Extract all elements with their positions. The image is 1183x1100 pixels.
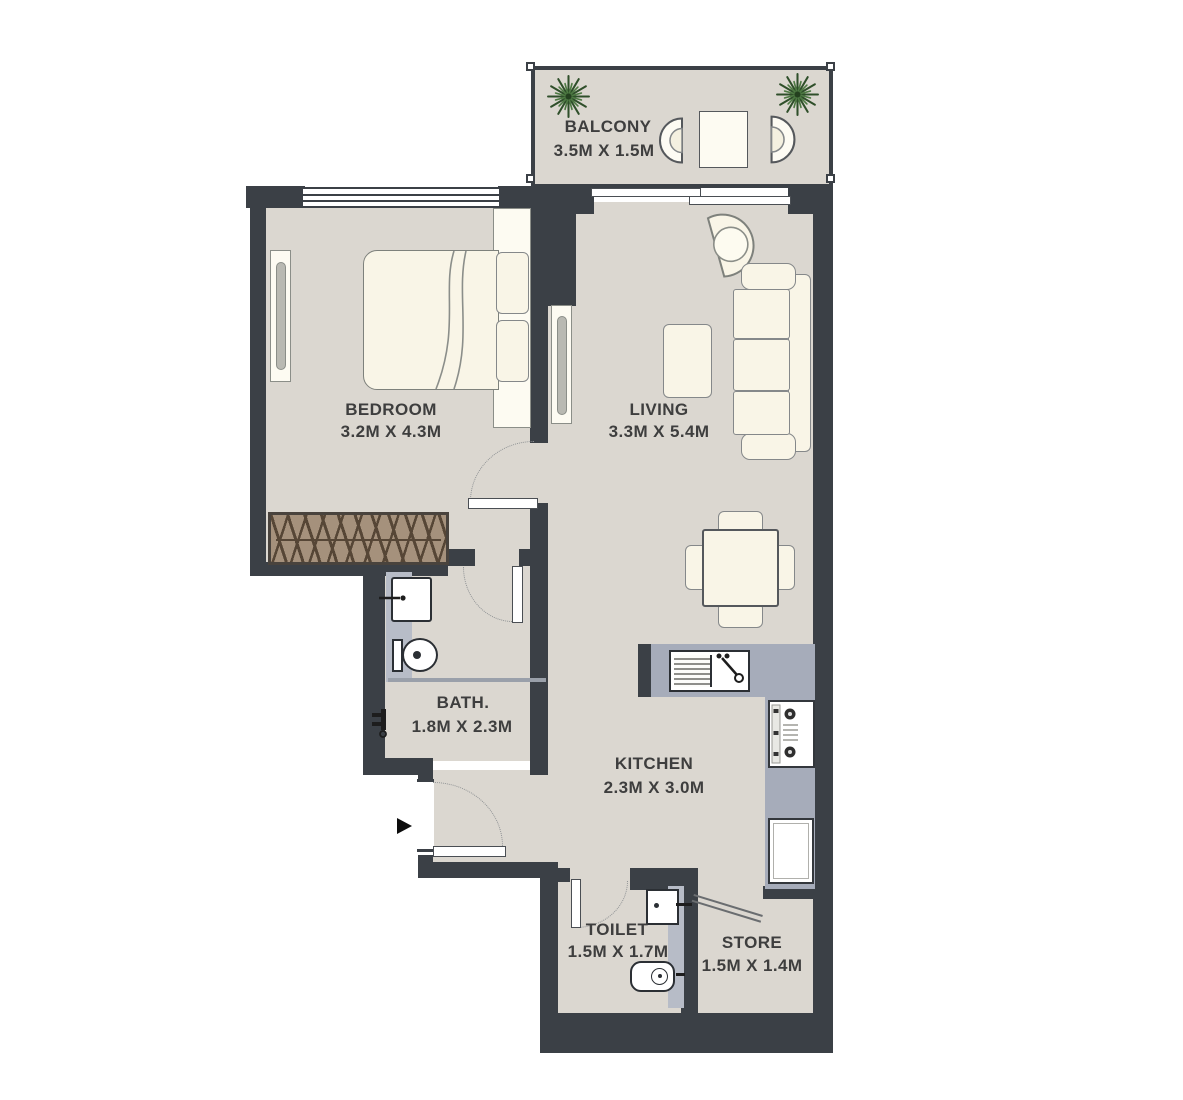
balcony-post	[826, 174, 835, 183]
wall	[558, 868, 570, 882]
sofa-back	[788, 274, 811, 452]
toilet-flush	[676, 973, 685, 976]
wall-bottom	[540, 1013, 833, 1053]
wall	[418, 862, 558, 878]
plant-icon	[546, 74, 591, 119]
bedroom-label: BEDROOM	[345, 400, 437, 420]
wall-divider	[530, 186, 576, 306]
entry-arrow-icon	[397, 818, 412, 834]
door-gap-floor	[698, 886, 763, 899]
entry-door	[433, 846, 506, 857]
balcony-sliding-door	[689, 196, 791, 205]
balcony-post	[526, 62, 535, 71]
stove	[768, 700, 815, 768]
wall	[498, 186, 534, 208]
sink-drain	[654, 903, 659, 908]
toilet-bowl	[630, 961, 675, 992]
sofa-armrest	[741, 433, 796, 460]
kitchen-sink	[669, 650, 750, 692]
toilet-drain	[413, 651, 421, 659]
balcony-table	[699, 111, 748, 168]
balcony-chair	[757, 112, 809, 167]
plant-icon	[775, 72, 820, 117]
sofa-cushion	[733, 339, 790, 391]
bedroom-dims: 3.2M X 4.3M	[341, 422, 442, 442]
toilet-sink-faucet	[676, 903, 692, 906]
bath-label: BATH.	[437, 693, 490, 713]
wall-left-bedroom	[250, 186, 266, 576]
counter-endcap	[638, 644, 651, 697]
refrigerator-inner	[773, 823, 809, 879]
wardrobe	[268, 512, 449, 565]
balcony-label: BALCONY	[565, 117, 652, 137]
coffee-table	[663, 324, 712, 398]
dresser-handle	[276, 262, 286, 370]
dining-table	[702, 529, 779, 607]
wall	[445, 549, 475, 566]
refrigerator	[768, 818, 814, 884]
entry-opening	[417, 779, 434, 855]
bath-dims: 1.8M X 2.3M	[412, 717, 513, 737]
wall-right	[813, 186, 833, 1052]
door-gap-floor	[474, 549, 520, 567]
floor-plan: BALCONY 3.5M X 1.5M BEDROOM 3.2M X 4.3M …	[0, 0, 1183, 1100]
balcony-post	[526, 174, 535, 183]
hall-console	[551, 305, 572, 424]
toilet-bowl-dot	[658, 974, 662, 978]
shower-mixer-icon	[370, 708, 396, 738]
toilet-dims: 1.5M X 1.7M	[568, 942, 669, 962]
sink-basin	[714, 652, 748, 690]
living-dims: 3.3M X 5.4M	[609, 422, 710, 442]
toilet-sink	[646, 889, 679, 925]
sofa-cushion	[733, 289, 790, 339]
console-shelf	[557, 316, 567, 415]
bath-sink-faucet	[378, 593, 408, 603]
toilet-door	[571, 879, 581, 928]
sink-drainboard	[674, 655, 712, 687]
sofa-cushion	[733, 391, 790, 435]
bath-door	[512, 566, 523, 623]
balcony-sliding-door	[591, 188, 701, 197]
toilet-label: TOILET	[586, 920, 649, 940]
kitchen-label: KITCHEN	[615, 754, 693, 774]
balcony-dims: 3.5M X 1.5M	[554, 141, 655, 161]
sofa-armrest	[741, 263, 796, 290]
entry-frame	[417, 849, 434, 852]
pillow	[496, 320, 529, 382]
store-dims: 1.5M X 1.4M	[702, 956, 803, 976]
wall-divider	[530, 503, 548, 775]
bath-partition-line	[388, 678, 546, 682]
window-mullion	[303, 200, 499, 202]
wall-toilet-left	[540, 868, 558, 1015]
balcony-post	[826, 62, 835, 71]
wall-divider	[530, 306, 548, 443]
entry-frame	[417, 779, 434, 782]
bed-blanket-fold	[420, 250, 482, 390]
bath-toilet-bowl	[402, 638, 438, 672]
kitchen-dims: 2.3M X 3.0M	[604, 778, 705, 798]
bedroom-dresser	[270, 250, 291, 382]
wall	[519, 549, 548, 566]
store-label: STORE	[722, 933, 782, 953]
living-label: LIVING	[629, 400, 688, 420]
bedroom-door	[468, 498, 538, 509]
bedroom-window	[301, 187, 501, 208]
window-mullion	[303, 194, 499, 196]
pillow	[496, 252, 529, 314]
wardrobe-rail	[276, 539, 441, 542]
